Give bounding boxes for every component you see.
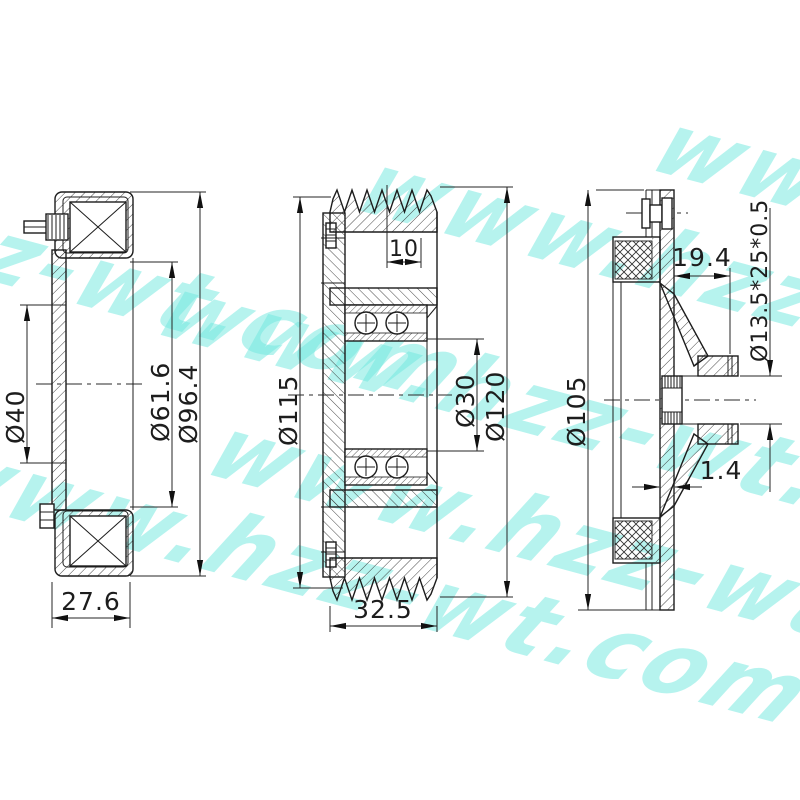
damper-arm-top (613, 237, 660, 282)
dim-label-left-width: 27.6 (61, 587, 121, 616)
bearing-seat-top (330, 288, 437, 305)
dim-label-middle-outer-diameter: Ø120 (481, 371, 510, 442)
technical-drawing: www.hzz-wt.com www.hzz-wt.com www.hzz-wt… (0, 0, 800, 800)
dim-label-left-bore-diameter: Ø40 (1, 390, 30, 445)
dim-label-groove-offset: 10 (389, 237, 419, 262)
bearing-bottom (345, 449, 437, 485)
pulley-hub-flange (323, 213, 345, 577)
dim-label-left-coil-diameter: Ø61.6 (146, 362, 175, 442)
dim-label-middle-width: 32.5 (353, 595, 413, 624)
drawing-page: www.hzz-wt.com www.hzz-wt.com www.hzz-wt… (0, 0, 800, 800)
dim-label-middle-bore-diameter: Ø30 (451, 374, 480, 429)
spline-bore (662, 376, 682, 424)
damper-arm-bottom (613, 518, 660, 563)
bearing-seat-bottom (330, 490, 437, 507)
coil-snap-tab (40, 504, 54, 528)
bearing-top (345, 305, 437, 341)
dim-label-left-outer-diameter: Ø96.4 (174, 364, 203, 444)
dim-label-hub-depth: 19.4 (672, 243, 732, 272)
dim-label-spline-spec: Ø13.5*25*0.5 (748, 199, 773, 362)
dim-label-right-outer-diameter: Ø105 (562, 376, 591, 447)
dim-left-width: 27.6 (52, 582, 130, 628)
dim-label-pitch-diameter: Ø115 (274, 375, 303, 446)
coil-mounting-flange (52, 250, 66, 510)
dim-label-plate-thickness: 1.4 (700, 456, 743, 485)
